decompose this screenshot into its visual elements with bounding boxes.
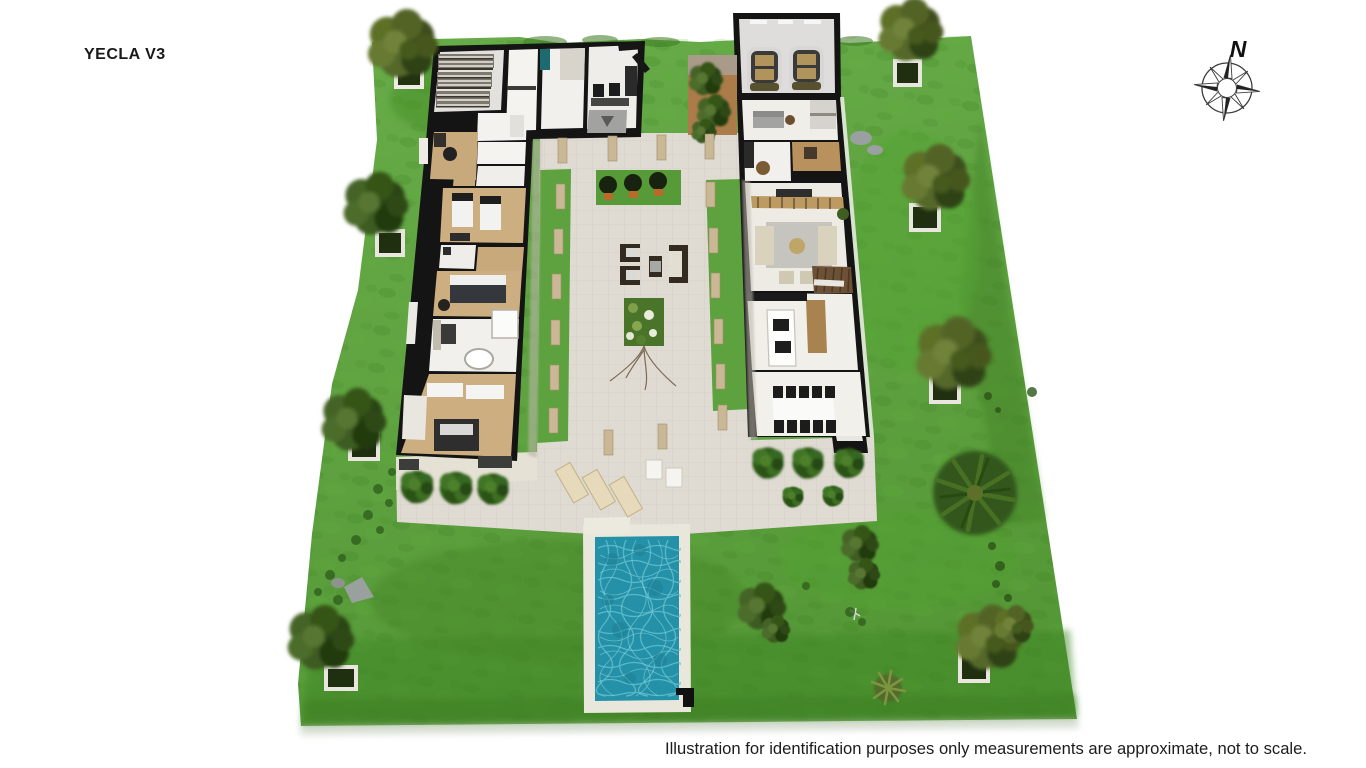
svg-text:N: N <box>1230 36 1247 62</box>
